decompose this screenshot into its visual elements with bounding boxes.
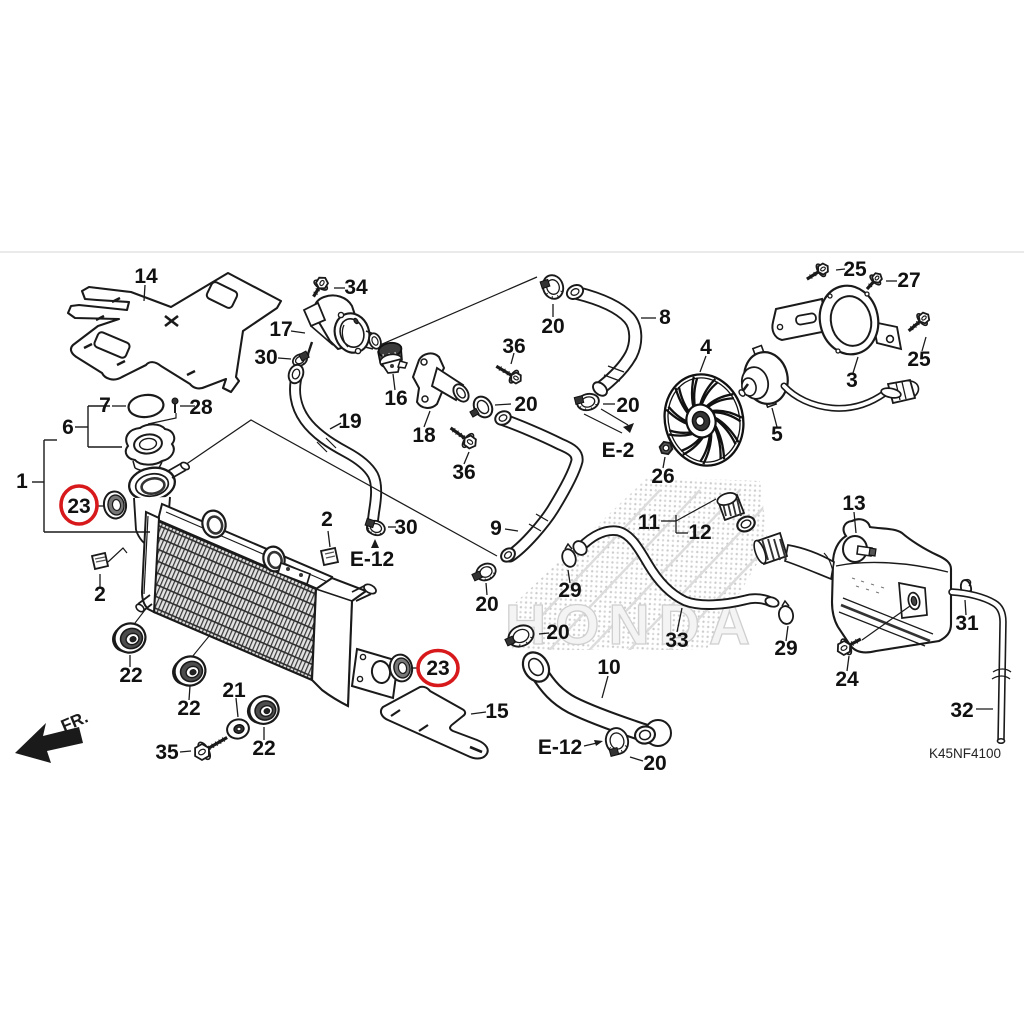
svg-text:14: 14 (134, 265, 158, 288)
svg-text:11: 11 (638, 511, 661, 534)
svg-text:21: 21 (222, 679, 246, 702)
svg-text:E-12: E-12 (350, 548, 394, 571)
svg-text:25: 25 (843, 258, 867, 281)
svg-text:33: 33 (665, 629, 688, 652)
svg-text:18: 18 (412, 424, 436, 447)
svg-text:1: 1 (16, 470, 28, 493)
svg-text:30: 30 (394, 516, 417, 539)
svg-text:29: 29 (558, 579, 581, 602)
svg-text:25: 25 (907, 348, 931, 371)
svg-text:23: 23 (426, 657, 449, 680)
svg-text:23: 23 (67, 495, 90, 518)
svg-text:27: 27 (897, 269, 920, 292)
svg-text:29: 29 (774, 637, 797, 660)
svg-text:12: 12 (688, 521, 711, 544)
svg-text:15: 15 (485, 700, 509, 723)
svg-text:20: 20 (475, 593, 498, 616)
svg-text:20: 20 (616, 394, 639, 417)
svg-text:36: 36 (502, 335, 525, 358)
svg-text:16: 16 (384, 387, 407, 410)
svg-text:24: 24 (835, 668, 859, 691)
svg-text:22: 22 (177, 697, 200, 720)
svg-text:9: 9 (490, 517, 502, 540)
svg-text:13: 13 (842, 492, 865, 515)
svg-text:E-2: E-2 (602, 439, 635, 462)
svg-text:26: 26 (651, 465, 674, 488)
svg-text:7: 7 (99, 394, 111, 417)
svg-text:E-12: E-12 (538, 736, 582, 759)
svg-text:6: 6 (62, 416, 74, 439)
svg-text:22: 22 (119, 664, 142, 687)
svg-text:K45NF4100: K45NF4100 (929, 746, 1001, 761)
svg-text:5: 5 (771, 423, 783, 446)
svg-text:32: 32 (950, 699, 973, 722)
svg-text:2: 2 (94, 583, 106, 606)
svg-text:4: 4 (700, 336, 712, 359)
svg-text:20: 20 (546, 621, 569, 644)
svg-text:28: 28 (189, 396, 213, 419)
svg-text:31: 31 (955, 612, 979, 635)
svg-text:17: 17 (269, 318, 292, 341)
svg-text:3: 3 (846, 369, 858, 392)
svg-text:8: 8 (659, 306, 671, 329)
svg-text:22: 22 (252, 737, 275, 760)
svg-text:20: 20 (643, 752, 666, 775)
svg-text:10: 10 (597, 656, 620, 679)
svg-text:34: 34 (344, 276, 368, 299)
svg-text:35: 35 (155, 741, 179, 764)
svg-text:20: 20 (514, 393, 537, 416)
svg-text:2: 2 (321, 508, 333, 531)
svg-text:30: 30 (254, 346, 277, 369)
svg-text:36: 36 (452, 461, 475, 484)
svg-text:19: 19 (338, 410, 361, 433)
svg-text:20: 20 (541, 315, 564, 338)
